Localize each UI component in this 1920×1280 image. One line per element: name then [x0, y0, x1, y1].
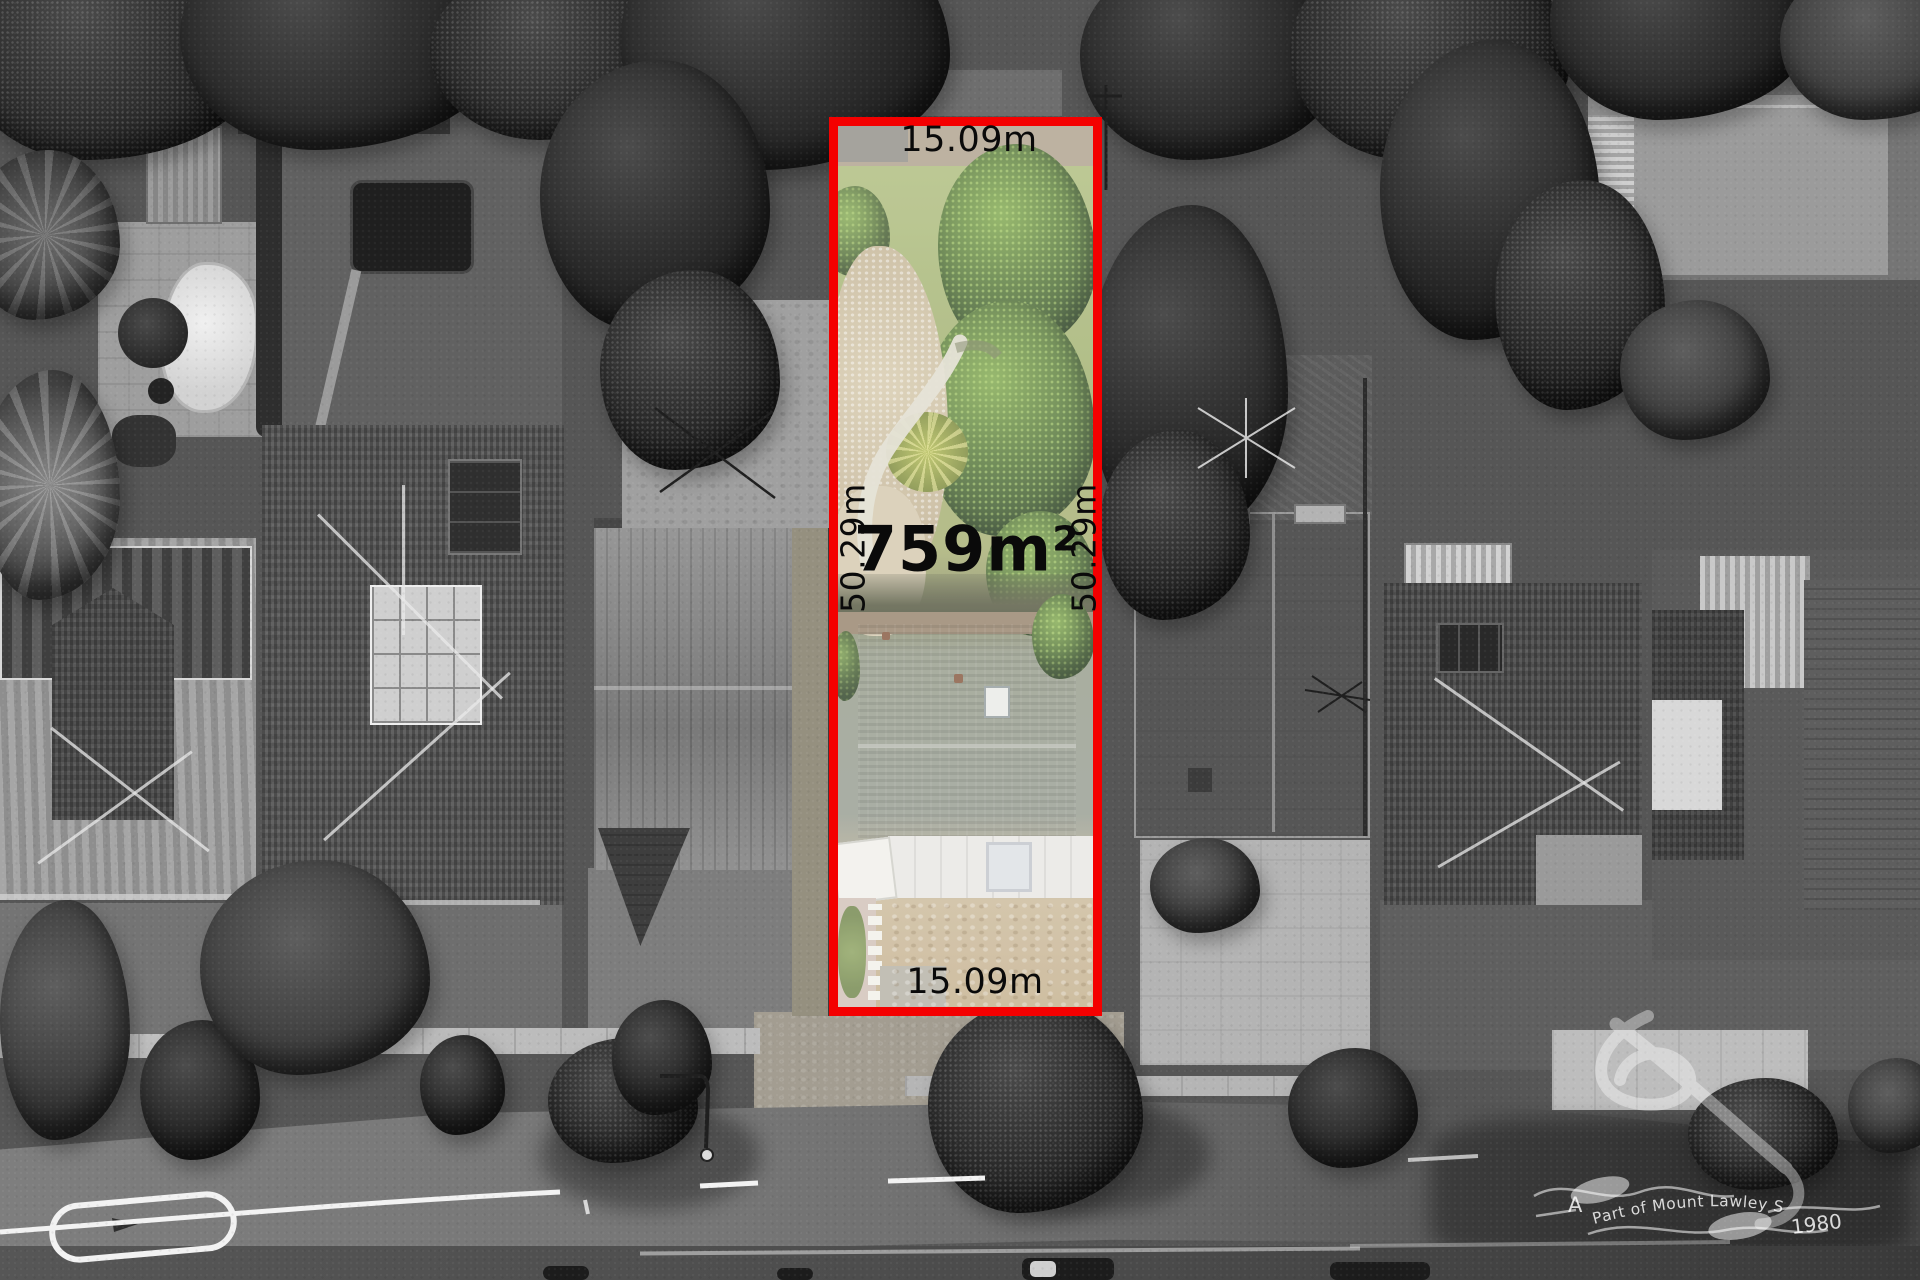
watermark-lead: A: [1568, 1193, 1583, 1217]
watermark-year: 1980: [1790, 1209, 1843, 1239]
tv-antenna: [1305, 676, 1370, 712]
watermark-arc-text: Part of Mount Lawley Since: [1528, 1000, 1785, 1228]
road-markings: [0, 1156, 1478, 1262]
dimension-label-bottom: 15.09m: [906, 962, 1043, 1002]
clothesline: [1198, 398, 1295, 478]
streetlight-pole: [660, 1076, 708, 1148]
svg-text:Part of Mount Lawley Since: Part of Mount Lawley Since: [1528, 1000, 1785, 1228]
watermark: A Part of Mount Lawley Since 1980: [1528, 1000, 1920, 1280]
streetlight-lamp: [701, 1149, 713, 1161]
lane-line-dash: [1408, 1156, 1478, 1160]
lot-area-label: 759m²: [854, 513, 1080, 586]
aerial-photo: 15.09m 15.09m 50.29m 50.29m 759m² A Part…: [0, 0, 1920, 1280]
kerb-tick: [585, 1200, 588, 1214]
lane-line-solid: [0, 1192, 560, 1232]
lane-line-dash: [888, 1178, 985, 1181]
lane-line-dash: [700, 1183, 758, 1186]
dimension-label-top: 15.09m: [900, 120, 1037, 160]
